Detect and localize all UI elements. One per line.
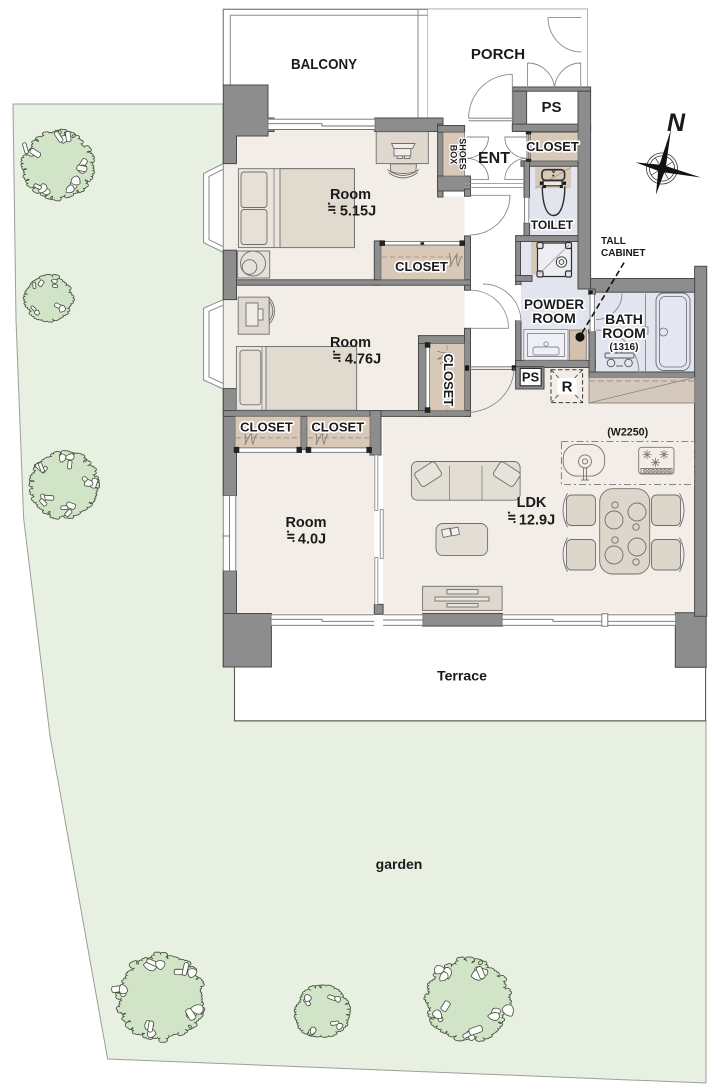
svg-text:12.9J: 12.9J [519,513,555,529]
svg-text:PORCH: PORCH [471,46,525,63]
svg-text:garden: garden [376,856,423,872]
svg-text:CLOSET: CLOSET [395,259,448,274]
svg-text:Room: Room [330,335,371,351]
svg-text:R: R [562,379,573,396]
svg-text:ENT: ENT [478,150,510,167]
svg-text:PS: PS [522,370,540,385]
svg-text:ROOM: ROOM [532,310,576,326]
svg-text:Terrace: Terrace [437,668,487,684]
svg-text:CLOSET: CLOSET [240,420,293,435]
svg-text:CLOSET: CLOSET [311,420,364,435]
svg-text:BALCONY: BALCONY [291,56,357,73]
svg-text:Room: Room [330,187,371,203]
svg-text:BOX: BOX [449,145,459,165]
svg-text:4.0J: 4.0J [298,532,326,548]
svg-text:TOILET: TOILET [531,218,574,232]
svg-text:Room: Room [285,515,326,531]
svg-text:ROOM: ROOM [602,325,646,341]
svg-text:CLOSET: CLOSET [441,354,456,407]
svg-text:(W2250): (W2250) [607,427,648,439]
svg-text:PS: PS [541,99,561,116]
svg-text:N: N [667,109,686,137]
svg-text:LDK: LDK [517,495,547,511]
svg-text:CLOSET: CLOSET [526,139,579,154]
svg-text:(1316): (1316) [610,342,639,353]
svg-text:4.76J: 4.76J [345,352,381,368]
svg-text:CABINET: CABINET [601,248,645,259]
svg-text:TALL: TALL [601,236,626,247]
svg-text:5.15J: 5.15J [340,204,376,220]
